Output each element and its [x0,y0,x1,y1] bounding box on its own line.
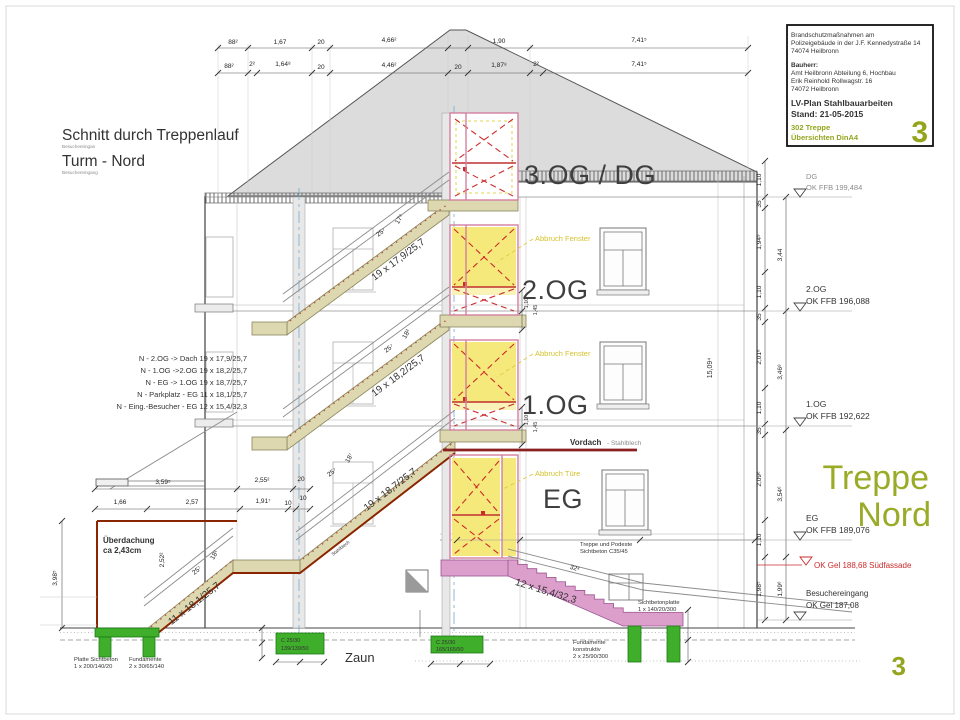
note-treppe-podeste-2: Sichtbeton C35/45 [580,549,628,555]
drawing-subtitle: Turm - Nord [62,153,145,170]
flight-label-park: 11 x 18,1/25,7 [166,580,222,628]
flight-og1-og2 [287,317,449,450]
foundation-post-1 [628,626,641,662]
tb-bauherr-1: Amt Heilbronn Abteilung 6, Hochbau [791,70,896,77]
dim: 2,09⁶ [756,471,763,487]
dim: 1,66 [114,499,127,506]
title-block: Brandschutzmaßnahmen am Polizeigebäude i… [787,25,933,149]
side-title-line2: Nord [857,496,931,534]
level-marker-eg [794,532,806,540]
landing-eg [233,560,300,573]
schedule-row: N - Eing.-Besucher - EG 12 x 15,4/32,3 [117,402,247,411]
dim: 3,44 [777,248,784,261]
window-eg-right [599,470,651,535]
level-marker-entry [794,612,806,620]
dim: 2,52² [159,552,166,568]
schedule-row: N - 1.OG ->2.OG 19 x 18,2/25,7 [140,366,247,375]
schedule-row: N - Parkplatz - EG 11 x 18,1/25,7 [137,390,247,399]
tread-dim: 25⁷ [375,227,387,239]
tread-dim: 25⁷ [191,565,203,577]
drawing-title: Schnitt durch Treppenlauf [62,127,239,144]
dim: 4,66² [382,37,398,44]
eg-entry-slab [441,560,518,576]
dim: 2² [249,61,256,68]
dim: 1,98⁵ [756,581,763,597]
dim: 7,41⁵ [631,61,647,68]
tb-project-1: Brandschutzmaßnahmen am [791,32,874,39]
sheet-number-bottom: 3 [892,651,906,681]
level-eg: EG [806,513,818,523]
dim: 1,10 [756,285,763,298]
tb-plan: LV-Plan Stahlbauarbeiten [791,98,893,108]
note-fund-konstr-2: konstruktiv [573,647,601,653]
dim: 1,99⁶ [777,581,784,597]
note-fundamente: Fundamente [129,657,162,663]
block2-spec-2: 165/165/50 [436,647,464,653]
dim: 1,45 [533,422,539,433]
block1-spec: C 25/30 [281,638,300,644]
section-symbol [406,570,428,592]
window-og2-right [597,228,649,295]
dim: 1,67 [274,39,287,46]
dim: 1,10 [756,173,763,186]
floor-label-dg: 3.OG / DG [524,160,656,190]
dim: 10 [284,500,292,507]
exterior-works [95,549,852,662]
level-marker-dg [794,189,806,197]
rise-dim-dach: 17⁹ [394,213,405,225]
canopy-profile [96,479,128,486]
dim: 1,64⁸ [275,61,291,68]
balcony-slab-og2 [195,304,233,312]
dim: 1,45 [533,305,539,316]
level-gel-red: OK Gel 188,68 Südfassade [814,561,912,570]
window-og1-right [597,342,649,409]
level-marker-og1 [794,418,806,426]
level-marker-gel [800,557,812,565]
dim-total-height: 15,09⁴ [707,358,714,379]
plate-sichtbeton [95,628,159,637]
schedule-row: N - EG -> 1.OG 19 x 18,7/25,7 [145,378,247,387]
ueberdachung-l2: ca 2,43cm [103,546,141,555]
level-entry-value: OK Gel 187,08 [806,601,859,610]
level-og2: 2.OG [806,284,826,294]
dim: 1,87⁸ [491,62,507,69]
drawing-subtitle-sub: Besuchereingang [62,170,98,175]
landing-og2 [252,322,287,335]
vordach-label: Vordach [570,438,602,447]
note-sichtbetonplatte-2: 1 x 140/20/300 [638,607,676,613]
dim: 35 [756,427,763,435]
parapet-og2 [206,237,233,297]
dim: 20 [317,39,325,46]
tower-openings [450,113,518,558]
dim: 1,10 [756,533,763,546]
dim: 20 [454,64,462,71]
tb-sheet-number: 3 [911,116,928,149]
landing-tower-og1 [440,430,526,442]
section-drawing: Schnitt durch Treppenlauf Besuchereingan… [0,0,960,720]
note-sichtbetonplatte: Sichtbetonplatte [638,600,680,606]
dim: 20 [297,476,305,483]
dim: 4,46² [382,62,398,69]
note-treppe-podeste: Treppe und Podeste [580,542,632,548]
floor-label-eg: EG [543,484,583,514]
tb-stand: Stand: 21-05-2015 [791,109,864,119]
vordach-sublabel: - Stahlblech [607,440,642,447]
rise-dim-park: 18¹ [209,549,220,561]
railing-f0 [144,528,233,606]
window-og2-abbruch [450,225,518,315]
drawing-title-sub1: Besuchereingan [62,144,96,149]
ueberdachung-l1: Überdachung [103,536,155,545]
foundation-leg-2 [143,637,155,657]
tb-project-3: 74074 Heilbronn [791,48,839,55]
floor-label-og1: 1.OG [522,390,589,420]
block2-spec: C 25/30 [436,640,455,646]
railing-f1 [296,410,455,540]
dim: 35 [756,200,763,208]
level-og1-value: OK FFB 192,622 [806,411,870,421]
note-platte-2: 1 x 200/140/20 [74,664,112,670]
level-og1: 1.OG [806,399,826,409]
tb-pos2: Übersichten DinA4 [791,133,859,142]
fence-post-lines [609,574,643,600]
plan-sheet: Schnitt durch Treppenlauf Besuchereingan… [0,0,960,720]
dim: 10 [299,495,307,502]
level-markers [757,189,852,620]
abbruch-fenster-og2: Abbruch Fenster [535,234,591,243]
dim: 7,41⁵ [631,37,647,44]
foundation-post-2 [667,626,680,662]
level-marker-og2 [794,303,806,311]
note-fund-konstr: Fundamente [573,640,606,646]
tb-bauherr-2: Erik Reinhold Rollwagstr. 16 [791,78,873,85]
schedule-row: N - 2.OG -> Dach 19 x 17,9/25,7 [139,354,247,363]
rise-dim-og2: 18² [401,328,412,340]
dim: 2² [533,61,540,68]
dim: 35 [756,313,763,321]
level-dg-value: OK FFB 199,484 [806,183,862,192]
tread-dim: 25⁷ [383,343,395,355]
dim: 3,54⁶ [777,486,784,502]
dim: 1,94⁹ [756,234,763,250]
note-fund-konstr-3: 2 x 25/90/300 [573,654,608,660]
dim: 3,46⁸ [777,364,784,380]
block1-spec-2: 139/139/50 [281,646,309,652]
dim: 2,57 [186,499,199,506]
zaun-label: Zaun [345,650,375,665]
dim: 88² [224,63,234,70]
landing-dg [428,200,518,211]
dim: 2,01⁶ [756,349,763,365]
door-eg-abbruch [450,455,518,558]
tb-bauherr-label: Bauherr: [791,62,818,69]
landing-tower-og2 [440,315,526,327]
dim-left-vertical: 3,98⁵ [52,570,59,586]
dim: 1,91⁷ [255,498,271,505]
note-fundamente-2: 2 x 30/65/140 [129,664,164,670]
dim: 20 [317,64,325,71]
abbruch-fenster-og1: Abbruch Fenster [535,349,591,358]
level-og2-value: OK FFB 196,088 [806,296,870,306]
cornice-left [205,193,452,203]
canopy-strut [110,412,237,489]
dim: 1,90 [493,38,506,45]
dim: 1,10 [524,298,530,309]
fence-post-box [609,574,643,600]
abbruch-tuere: Abbruch Türe [535,469,580,478]
level-dg: DG [806,172,817,181]
dim: 88² [228,39,238,46]
level-entry: Besuchereingang [806,589,868,598]
dim: 1,10 [756,401,763,414]
landing-og1 [252,437,287,450]
besucher-railing [508,549,852,612]
dim: 1,10 [524,415,530,426]
tb-project-2: Polizeigebäude in der J.F. Kennedystraße… [791,40,921,47]
dim: 3,59⁵ [155,479,171,486]
foundation-leg-1 [99,637,111,657]
side-title-line1: Treppe [823,459,929,497]
tb-pos1: 302 Treppe [791,123,830,132]
floor-label-og2: 2.OG [522,275,589,305]
door-dg [450,113,518,200]
tb-bauherr-3: 74072 Heilbronn [791,86,839,93]
window-og1-abbruch [450,340,518,430]
dim: 2,55² [255,477,271,484]
note-platte: Platte Sichtbeton [74,657,118,663]
flight-og2-dach [287,202,449,335]
